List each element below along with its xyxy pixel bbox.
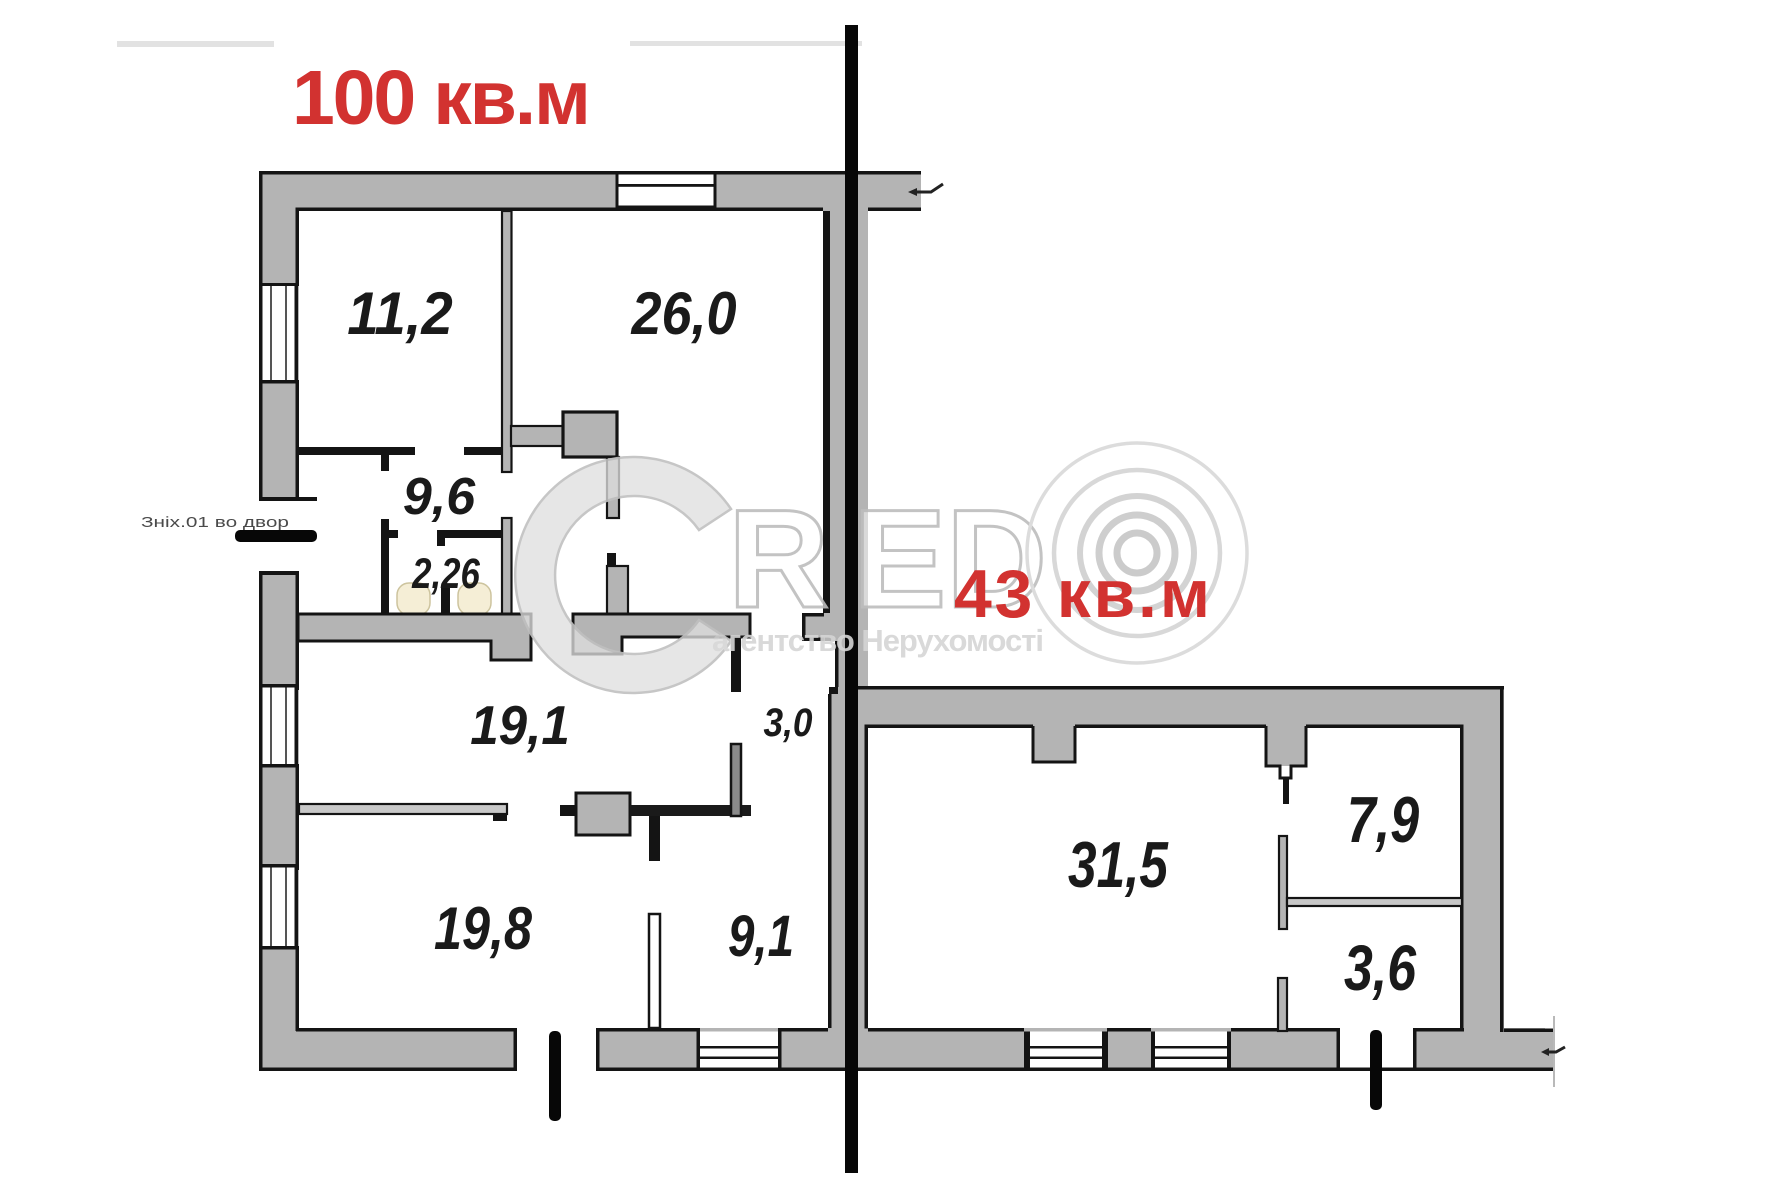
svg-text:26,0: 26,0: [631, 280, 737, 347]
svg-text:E: E: [853, 480, 946, 637]
svg-text:3,0: 3,0: [764, 700, 813, 745]
svg-text:R: R: [728, 480, 829, 637]
svg-text:9,6: 9,6: [403, 468, 476, 526]
svg-text:19,1: 19,1: [470, 695, 570, 756]
svg-text:3,6: 3,6: [1344, 933, 1417, 1004]
svg-text:Зніх.01 во двор: Зніх.01 во двор: [141, 514, 289, 531]
svg-text:19,8: 19,8: [434, 895, 532, 962]
svg-text:2,26: 2,26: [411, 551, 480, 598]
svg-text:9,1: 9,1: [728, 905, 794, 970]
svg-text:11,2: 11,2: [347, 280, 453, 347]
svg-text:100 кв.м: 100 кв.м: [292, 55, 591, 141]
svg-text:31,5: 31,5: [1068, 829, 1169, 901]
svg-text:7,9: 7,9: [1347, 785, 1420, 857]
